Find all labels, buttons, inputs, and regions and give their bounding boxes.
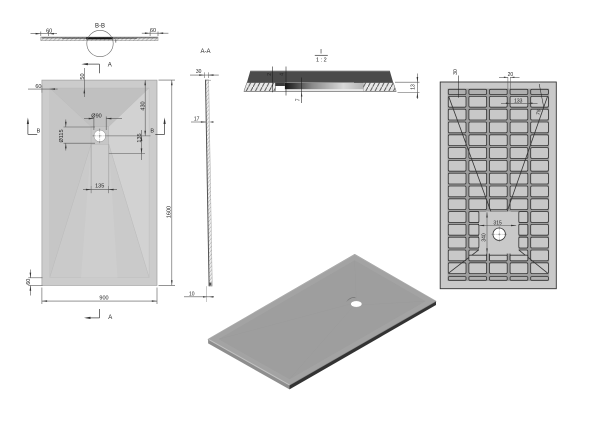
svg-text:17: 17: [194, 117, 200, 123]
svg-text:I: I: [320, 49, 322, 56]
svg-text:B: B: [37, 129, 41, 135]
svg-text:A: A: [108, 62, 112, 68]
svg-text:315: 315: [493, 221, 502, 227]
svg-text:30: 30: [453, 69, 459, 75]
svg-text:340: 340: [481, 233, 487, 242]
svg-text:13: 13: [411, 84, 417, 90]
svg-text:135: 135: [137, 133, 143, 142]
svg-text:A-A: A-A: [200, 49, 210, 55]
svg-text:30: 30: [196, 69, 202, 75]
svg-text:Ø90: Ø90: [91, 114, 101, 120]
svg-text:A: A: [108, 315, 112, 321]
svg-text:900: 900: [99, 296, 108, 302]
svg-text:7: 7: [295, 98, 301, 101]
svg-text:1600: 1600: [167, 206, 173, 218]
svg-text:B: B: [150, 129, 154, 135]
svg-text:50: 50: [80, 73, 86, 79]
svg-text:2: 2: [267, 73, 273, 76]
svg-text:60: 60: [46, 29, 52, 35]
svg-text:Ø115: Ø115: [59, 129, 65, 142]
svg-text:B-B: B-B: [95, 24, 105, 30]
svg-text:1 : 2: 1 : 2: [316, 58, 327, 64]
svg-text:60: 60: [26, 279, 32, 285]
svg-text:60: 60: [150, 28, 156, 34]
svg-text:4: 4: [279, 73, 285, 76]
svg-text:135: 135: [95, 183, 104, 189]
